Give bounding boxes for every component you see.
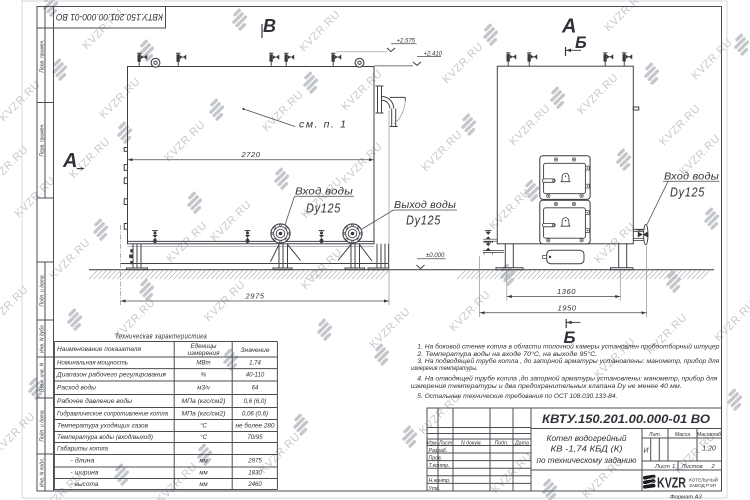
svg-text:3. На подводящей трубе котла: 3. На подводящей трубе котла , до запорн… bbox=[417, 357, 720, 365]
svg-text:И: И bbox=[644, 448, 650, 455]
svg-text:0,06 (0,6): 0,06 (0,6) bbox=[242, 410, 268, 417]
svg-text:+2.410: +2.410 bbox=[424, 51, 443, 57]
svg-text:2975: 2975 bbox=[247, 458, 262, 465]
svg-text:1: 1 bbox=[672, 464, 675, 470]
svg-text:КВТУ.150.201.00.000-01 ВО: КВТУ.150.201.00.000-01 ВО bbox=[542, 412, 711, 426]
svg-text:- длина: - длина bbox=[71, 458, 96, 465]
svg-text:В: В bbox=[263, 16, 276, 36]
svg-text:Dy125: Dy125 bbox=[306, 202, 341, 216]
svg-text:Dy125: Dy125 bbox=[406, 214, 441, 228]
svg-text:4. На отводящей трубе котла ,: 4. На отводящей трубе котла ,до запорной… bbox=[417, 375, 718, 383]
svg-text:КВ -1,74 КБД (К): КВ -1,74 КБД (К) bbox=[551, 445, 623, 454]
svg-text:Взам. инв. N: Взам. инв. N bbox=[39, 363, 45, 393]
svg-text:Гидравлическое сопротивление к: Гидравлическое сопротивление котла bbox=[57, 410, 169, 417]
svg-text:Масштаб: Масштаб bbox=[697, 432, 722, 438]
svg-text:5. Остальные технические треб: 5. Остальные технические требования по О… bbox=[417, 392, 617, 400]
svg-text:мм: мм bbox=[199, 481, 208, 488]
svg-text:Габариты котла: Габариты котла bbox=[57, 445, 109, 452]
svg-text:2975: 2975 bbox=[245, 292, 265, 301]
svg-text:измерения: измерения bbox=[188, 350, 221, 357]
svg-text:2720: 2720 bbox=[241, 150, 261, 159]
svg-text:- высота: - высота bbox=[71, 481, 100, 488]
svg-text:см. п. 1: см. п. 1 bbox=[299, 119, 348, 131]
svg-text:МПа (кгс/см2): МПа (кгс/см2) bbox=[182, 398, 226, 405]
svg-text:Инв. N дубл.: Инв. N дубл. bbox=[39, 324, 45, 353]
svg-text:измерения температуры.: измерения температуры. bbox=[411, 365, 478, 372]
svg-text:Инв. N подл.: Инв. N подл. bbox=[39, 458, 45, 487]
svg-text:мм: мм bbox=[199, 458, 208, 465]
svg-text:Изм.: Изм. bbox=[427, 440, 438, 446]
svg-text:Подп. и дата: Подп. и дата bbox=[39, 275, 45, 307]
svg-text:Температура уходящих газов: Температура уходящих газов bbox=[57, 422, 148, 429]
svg-text:Еденицы: Еденицы bbox=[191, 343, 218, 350]
svg-text:Лист: Лист bbox=[654, 464, 670, 470]
svg-text:- ширина: - ширина bbox=[71, 470, 100, 477]
svg-text:Масса: Масса bbox=[675, 432, 690, 438]
svg-text:40-110: 40-110 bbox=[246, 372, 265, 379]
svg-text:1950: 1950 bbox=[558, 304, 577, 313]
svg-text:1,74: 1,74 bbox=[249, 360, 261, 367]
svg-text:Формат А3: Формат А3 bbox=[670, 494, 702, 500]
svg-text:Наименование показателя: Наименование показателя bbox=[57, 346, 142, 353]
svg-text:Перв. примен.: Перв. примен. bbox=[39, 123, 45, 156]
svg-text:мм: мм bbox=[199, 470, 208, 477]
svg-text:KVZR: KVZR bbox=[657, 476, 686, 492]
svg-text:°С: °С bbox=[200, 422, 207, 429]
svg-text:Выход воды: Выход воды bbox=[394, 199, 456, 211]
svg-text:Т.контр.: Т.контр. bbox=[429, 463, 450, 469]
svg-text:64: 64 bbox=[252, 385, 259, 392]
svg-text:м3/ч: м3/ч bbox=[197, 385, 210, 392]
svg-text:0,6 (6,0): 0,6 (6,0) bbox=[244, 398, 267, 405]
svg-text:Б: Б bbox=[575, 34, 587, 52]
svg-text:по техническому заданию: по техническому заданию bbox=[537, 456, 637, 465]
svg-text:измерения температуры и два пр: измерения температуры и два предохраните… bbox=[411, 382, 682, 390]
svg-text:2: 2 bbox=[711, 464, 716, 470]
svg-text:N докум.: N докум. bbox=[461, 440, 482, 446]
svg-text:Температура воды (вход/выход): Температура воды (вход/выход) bbox=[57, 434, 153, 441]
svg-text:Рабочее давление воды: Рабочее давление воды bbox=[57, 398, 133, 405]
svg-text:КОТЕЛЬНЫЙ: КОТЕЛЬНЫЙ bbox=[689, 475, 718, 482]
svg-text:Dy125: Dy125 bbox=[670, 186, 705, 200]
svg-text:+2.575: +2.575 bbox=[397, 39, 416, 45]
svg-text:МВт: МВт bbox=[196, 360, 210, 367]
svg-text:Диапазон рабочего регулировани: Диапазон рабочего регулирования bbox=[56, 372, 167, 379]
svg-text:Лист: Лист bbox=[438, 440, 453, 446]
svg-text:Подп. и дата: Подп. и дата bbox=[39, 410, 45, 442]
svg-text:%: % bbox=[201, 372, 207, 379]
svg-text:Разраб.: Разраб. bbox=[429, 448, 448, 454]
svg-text:2460: 2460 bbox=[247, 481, 262, 488]
svg-text:Дата: Дата bbox=[514, 440, 529, 446]
svg-text:Техническая характеристика: Техническая характеристика bbox=[115, 334, 207, 341]
svg-text:Лит.: Лит. bbox=[648, 432, 661, 438]
svg-text:°С: °С bbox=[200, 434, 207, 441]
svg-text:Перв. примен.: Перв. примен. bbox=[39, 39, 45, 72]
svg-text:Номинальная мощность: Номинальная мощность bbox=[57, 360, 128, 367]
svg-text:1830: 1830 bbox=[248, 470, 262, 477]
svg-text:Значение: Значение bbox=[241, 347, 271, 354]
svg-text:А: А bbox=[62, 150, 77, 172]
svg-text:Подп.: Подп. bbox=[495, 440, 509, 446]
svg-text:1360: 1360 bbox=[557, 287, 576, 296]
svg-text:70/95: 70/95 bbox=[247, 434, 263, 441]
svg-text:Утв.: Утв. bbox=[429, 486, 441, 492]
svg-text:Котел водогрейный: Котел водогрейный bbox=[547, 434, 628, 443]
svg-text:не более 280: не более 280 bbox=[236, 422, 276, 429]
svg-text:Вход воды: Вход воды bbox=[295, 186, 353, 198]
svg-text:1. На боковой стенке котла в: 1. На боковой стенке котла в области топ… bbox=[417, 342, 719, 350]
svg-text:2. Температура воды на входе: 2. Температура воды на входе 70°С, на вы… bbox=[416, 350, 597, 358]
svg-text:Расход воды: Расход воды bbox=[57, 385, 97, 392]
svg-text:МПа (кгс/см2): МПа (кгс/см2) bbox=[182, 410, 226, 417]
svg-text:1:20: 1:20 bbox=[702, 446, 716, 453]
svg-text:Вход воды: Вход воды bbox=[664, 171, 719, 183]
svg-text:Пров.: Пров. bbox=[429, 455, 443, 461]
svg-text:Н.контр.: Н.контр. bbox=[429, 478, 451, 484]
svg-text:Листов: Листов bbox=[681, 464, 703, 470]
svg-text:±0.000: ±0.000 bbox=[426, 253, 445, 259]
svg-text:КВТУ.150.201.00.000-01 ВО: КВТУ.150.201.00.000-01 ВО bbox=[56, 12, 163, 22]
svg-text:ЗАВОД РЭП: ЗАВОД РЭП bbox=[689, 483, 716, 488]
